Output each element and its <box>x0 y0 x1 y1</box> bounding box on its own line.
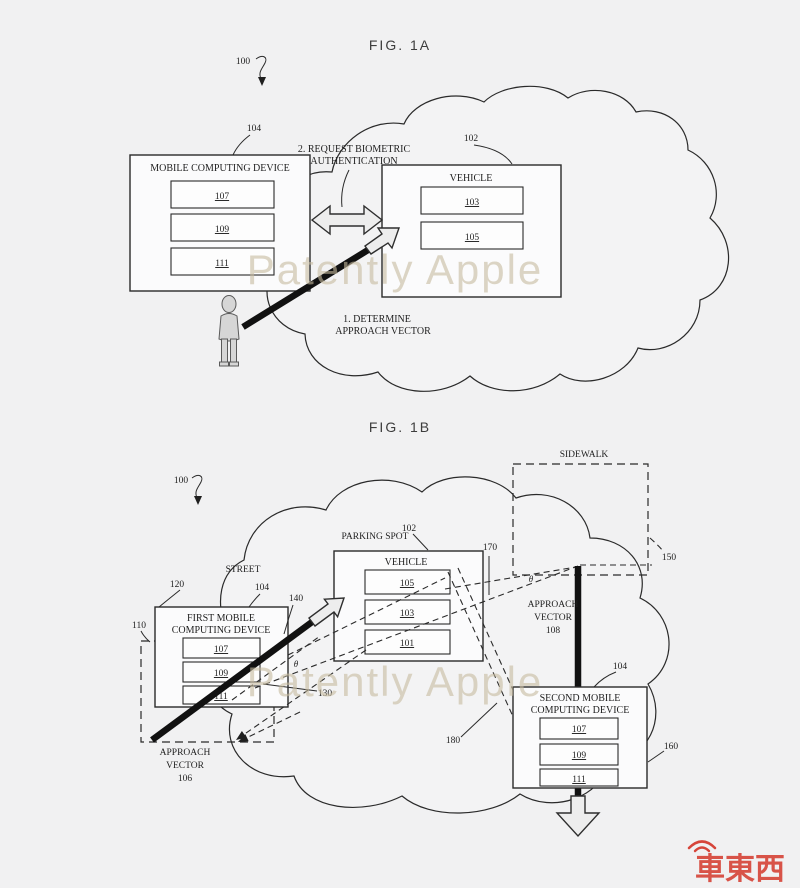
fig1a-ref-100-arrowhead-icon <box>258 77 266 86</box>
component-107-label: 107 <box>215 192 230 202</box>
fig1b-ref-110-leader <box>141 631 150 642</box>
patent-figure-page: FIG. 1A 100 104 MOBILE COMPUTING DEVICE … <box>0 0 800 888</box>
approach-vector-108-line2: VECTOR <box>534 613 572 623</box>
sidewalk-label: SIDEWALK <box>560 450 609 460</box>
street-label: STREET <box>226 565 261 575</box>
fig1a: FIG. 1A 100 104 MOBILE COMPUTING DEVICE … <box>130 37 729 391</box>
fig1b-title: FIG. 1B <box>369 419 431 435</box>
component-105-label: 105 <box>465 233 480 243</box>
fig1b-ref-140: 140 <box>289 594 304 604</box>
approach-vector-108-ref: 108 <box>546 626 561 636</box>
person-icon <box>219 296 239 367</box>
fig1a-step1-line2: APPROACH VECTOR <box>335 326 431 337</box>
mobile-computing-device-title: MOBILE COMPUTING DEVICE <box>150 163 289 174</box>
fig1b-ref-100: 100 <box>174 476 189 486</box>
first-device-109-label: 109 <box>214 669 229 679</box>
fig1b-vehicle-title: VEHICLE <box>385 557 428 568</box>
fig1b-ref-160: 160 <box>664 742 679 752</box>
first-device-title-1: FIRST MOBILE <box>187 613 255 624</box>
logo-text: 車東西 <box>695 853 785 886</box>
second-device-109-label: 109 <box>572 751 587 761</box>
fig1b-ref-100-arrow <box>192 475 202 498</box>
approach-vector-108-line1: APPROACH <box>528 600 579 610</box>
fig1a-ref-100: 100 <box>236 57 251 67</box>
second-device-title-2: COMPUTING DEVICE <box>531 705 630 716</box>
vehicle-105-label: 105 <box>400 579 415 589</box>
fig1b-ref-120: 120 <box>170 580 185 590</box>
approach-vector-106-line2: VECTOR <box>166 761 204 771</box>
fig1a-ref-102: 102 <box>464 134 479 144</box>
vehicle-103-label: 103 <box>400 609 415 619</box>
fig1a-ref-104: 104 <box>247 124 262 134</box>
first-device-107-label: 107 <box>214 645 229 655</box>
fig1b-ref-170: 170 <box>483 543 498 553</box>
fig1b-ref-104b: 104 <box>613 662 628 672</box>
fig1a-ref-100-arrow <box>256 56 266 79</box>
fig1a-step1-line1: 1. DETERMINE <box>343 314 411 325</box>
fig1b-ref-160-leader <box>648 751 664 762</box>
patent-drawing: FIG. 1A 100 104 MOBILE COMPUTING DEVICE … <box>0 0 800 888</box>
fig1b-ref-180: 180 <box>446 736 461 746</box>
second-device-title-1: SECOND MOBILE <box>540 693 621 704</box>
patently-apple-watermark-1a: Patently Apple <box>247 246 544 293</box>
fig1b-ref-150-leader <box>650 538 663 551</box>
fig1b-ref-150: 150 <box>662 553 677 563</box>
fig1b-ref-102: 102 <box>402 524 417 534</box>
fig1b: FIG. 1B SIDEWALK 150 100 STREET PARKING … <box>132 419 678 836</box>
fig1a-step2-line2: AUTHENTICATION <box>310 156 397 167</box>
fig1a-ref-104-leader <box>233 135 250 155</box>
first-device-title-2: COMPUTING DEVICE <box>172 625 271 636</box>
fig1b-ref-120-leader <box>159 590 180 607</box>
vehicle-title: VEHICLE <box>450 173 493 184</box>
approach-vector-106-ref: 106 <box>178 774 193 784</box>
fig1b-ref-104a: 104 <box>255 583 270 593</box>
parking-spot-label: PARKING SPOT <box>342 532 409 542</box>
vehicle-101-label: 101 <box>400 639 415 649</box>
theta-angle-1: θ <box>529 574 534 584</box>
fig1a-title: FIG. 1A <box>369 37 431 53</box>
fig1b-ref-100-arrowhead-icon <box>194 496 202 505</box>
approach-vector-106-line1: APPROACH <box>160 748 211 758</box>
second-device-111-label: 111 <box>572 775 586 785</box>
second-device-107-label: 107 <box>572 725 587 735</box>
patently-apple-watermark-1b: Patently Apple <box>247 658 544 705</box>
logo-wifi-arc-inner-icon <box>695 848 709 852</box>
fig1a-step2-line1: 2. REQUEST BIOMETRIC <box>298 144 411 155</box>
site-logo: 車東西 <box>689 842 785 887</box>
fig1b-ref-110: 110 <box>132 621 146 631</box>
component-109-label: 109 <box>215 225 230 235</box>
component-111-label: 111 <box>215 259 229 269</box>
component-103-label: 103 <box>465 198 480 208</box>
